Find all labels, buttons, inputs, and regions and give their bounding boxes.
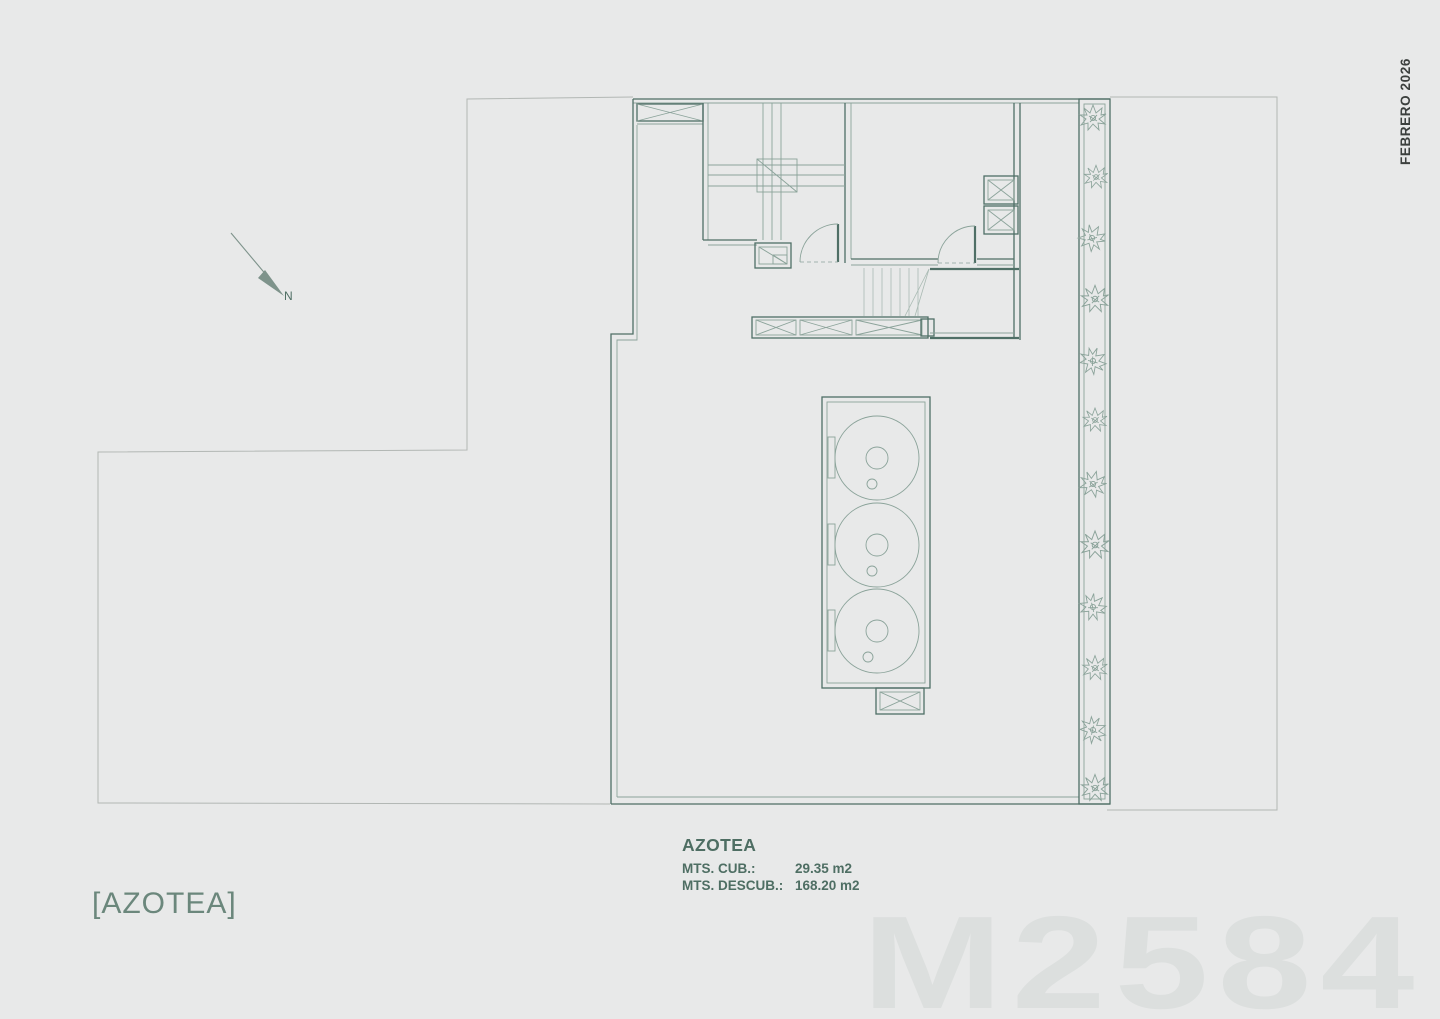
vent-box-bottom xyxy=(876,688,924,714)
step-room xyxy=(930,269,1019,338)
north-label: N xyxy=(284,289,293,303)
area-row-value: 168.20 m2 xyxy=(795,877,860,894)
plan-name-label: [AZOTEA] xyxy=(92,887,237,921)
roof-outline-walls xyxy=(611,99,1110,804)
date-label: FEBRERO 2026 xyxy=(1398,55,1413,165)
stairs xyxy=(864,268,929,316)
door-machine-room xyxy=(938,226,975,263)
north-arrow-icon xyxy=(231,233,284,296)
vent-band xyxy=(752,317,934,338)
skylight-room xyxy=(703,103,851,263)
water-tank-platform xyxy=(822,397,930,688)
floor-plan-sheet: FEBRERO 2026 N AZOTEA MTS. CUB.: 29.35 m… xyxy=(0,0,1440,1019)
area-row-uncovered: MTS. DESCUB.: 168.20 m2 xyxy=(682,877,860,894)
area-row-value: 29.35 m2 xyxy=(795,860,852,877)
planter-strip xyxy=(1075,99,1112,804)
area-row-label: MTS. CUB.: xyxy=(682,860,795,877)
vent-box-top-left xyxy=(637,104,703,124)
door-stair-core xyxy=(800,224,838,262)
shaft-box xyxy=(755,243,791,268)
area-row-label: MTS. DESCUB.: xyxy=(682,877,795,894)
area-title: AZOTEA xyxy=(682,835,860,856)
area-info-block: AZOTEA MTS. CUB.: 29.35 m2 MTS. DESCUB.:… xyxy=(682,835,860,894)
machine-room xyxy=(851,103,1020,340)
area-row-covered: MTS. CUB.: 29.35 m2 xyxy=(682,860,860,877)
property-boundary xyxy=(98,97,1277,810)
watermark-text: M2584 xyxy=(862,897,1423,1019)
